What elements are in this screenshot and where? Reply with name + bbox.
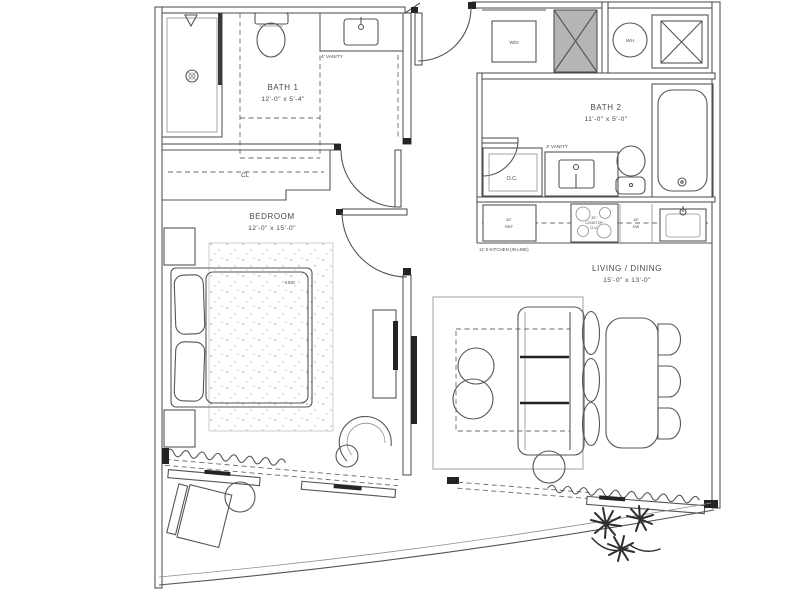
living-tv — [411, 336, 417, 424]
bath1-clearance-dashes — [240, 13, 398, 158]
kitchen: 30" REF 30" COOKTOP O.U. 18" DW 11'-0 KI… — [477, 202, 712, 252]
bath1-door — [341, 150, 401, 207]
bedroom-door — [342, 212, 407, 277]
cooktop-label: COOKTOP — [585, 221, 604, 225]
dining-chair — [583, 359, 600, 402]
water-heater-label: WH — [626, 38, 635, 44]
dishwasher-size-label: 18" — [633, 217, 639, 222]
coffee-table — [458, 348, 494, 384]
dining-chair — [658, 408, 681, 439]
balcony-side-table — [225, 482, 255, 512]
cooktop: 30" COOKTOP O.U. — [571, 204, 618, 242]
owners-closet-label: O.C. — [506, 176, 517, 182]
closet-label: CL — [241, 173, 249, 179]
sliding-door-run-2 — [457, 478, 706, 514]
washer-dryer-label: W/D — [509, 40, 519, 46]
living-dims: 15'-0" x 13'-0" — [603, 277, 651, 284]
balcony-edge-inner — [159, 503, 711, 577]
bath1-room: 4' VANITY BATH 1 12'-0" x 5'-4" — [162, 13, 403, 158]
coffee-table — [453, 379, 493, 419]
bedroom-closet: CL — [162, 150, 330, 200]
shower-head-icon — [185, 15, 197, 26]
toilet-1 — [255, 13, 288, 57]
fridge-label: REF — [505, 224, 514, 229]
washer-dryer-closet: W/D — [482, 10, 546, 62]
bedroom-tv — [393, 321, 398, 370]
cooktop-size-label: 30" — [591, 216, 597, 220]
balcony-edge-outer — [159, 510, 714, 585]
pillow — [174, 274, 205, 334]
bath2-name: BATH 2 — [590, 103, 621, 112]
utility-shaft — [554, 10, 597, 72]
bath2-dims: 11'-0" x 5'-0" — [584, 116, 627, 123]
bath1-name: BATH 1 — [267, 83, 298, 92]
kitchen-sink — [660, 206, 706, 241]
dining-table — [606, 318, 658, 448]
fridge-size-label: 30" — [506, 217, 512, 222]
pillow — [174, 342, 205, 402]
vanity2-label: 3' VANITY — [546, 144, 569, 150]
vanity1-label: 4' VANITY — [321, 54, 344, 60]
toilet-2 — [616, 146, 645, 194]
bedroom-name: BEDROOM — [249, 212, 295, 221]
bathtub — [652, 84, 713, 197]
dresser — [373, 310, 398, 398]
balcony — [159, 448, 718, 585]
bath1-dims: 12'-0" x 5'-4" — [261, 96, 305, 103]
bedroom-dims: 12'-0" x 15'-0" — [248, 225, 296, 232]
dishwasher-label: DW — [633, 224, 640, 229]
lounge-chair — [166, 482, 231, 547]
cooktop-note-label: O.U. — [590, 226, 597, 230]
water-heater: WH — [613, 23, 647, 57]
bed-size-label: KING — [285, 280, 295, 285]
dining-chair — [583, 312, 600, 355]
floor-plan-page: 4' VANITY BATH 1 12'-0" x 5'-4" CL W/D W… — [0, 0, 800, 600]
shower — [162, 13, 222, 137]
dining-chair — [583, 403, 600, 446]
vanity-2: 3' VANITY — [545, 144, 618, 196]
dining-set — [583, 312, 681, 449]
sliding-door-run-1 — [164, 449, 400, 498]
bath2-door — [482, 138, 518, 176]
dining-chair — [658, 324, 681, 355]
living-name: LIVING / DINING — [592, 264, 662, 273]
floor-plan-drawing: 4' VANITY BATH 1 12'-0" x 5'-4" CL W/D W… — [0, 0, 800, 600]
reading-chair — [336, 416, 391, 467]
shower-glass — [218, 13, 222, 85]
entry-door — [415, 8, 471, 65]
curtain-squiggle — [166, 449, 286, 466]
kitchen-note: 11'-0 KITCHEN (IN-LINE) — [479, 247, 529, 252]
living-room: LIVING / DINING 15'-0" x 13'-0" — [411, 264, 681, 483]
refrigerator: 30" REF — [483, 205, 536, 241]
bedroom-room: KING BEDROOM 12'-0" x 15'-0" — [164, 212, 398, 467]
living-rug — [433, 297, 583, 469]
owners-closet: O.C. — [483, 148, 542, 196]
vanity-1: 4' VANITY — [320, 13, 403, 60]
palm-plant — [591, 506, 660, 561]
nightstand — [164, 410, 195, 447]
nightstand — [164, 228, 195, 265]
shaft-2 — [652, 15, 708, 68]
rug-inner-dashes — [456, 329, 570, 431]
ottoman — [533, 451, 565, 483]
dining-chair — [658, 366, 681, 397]
